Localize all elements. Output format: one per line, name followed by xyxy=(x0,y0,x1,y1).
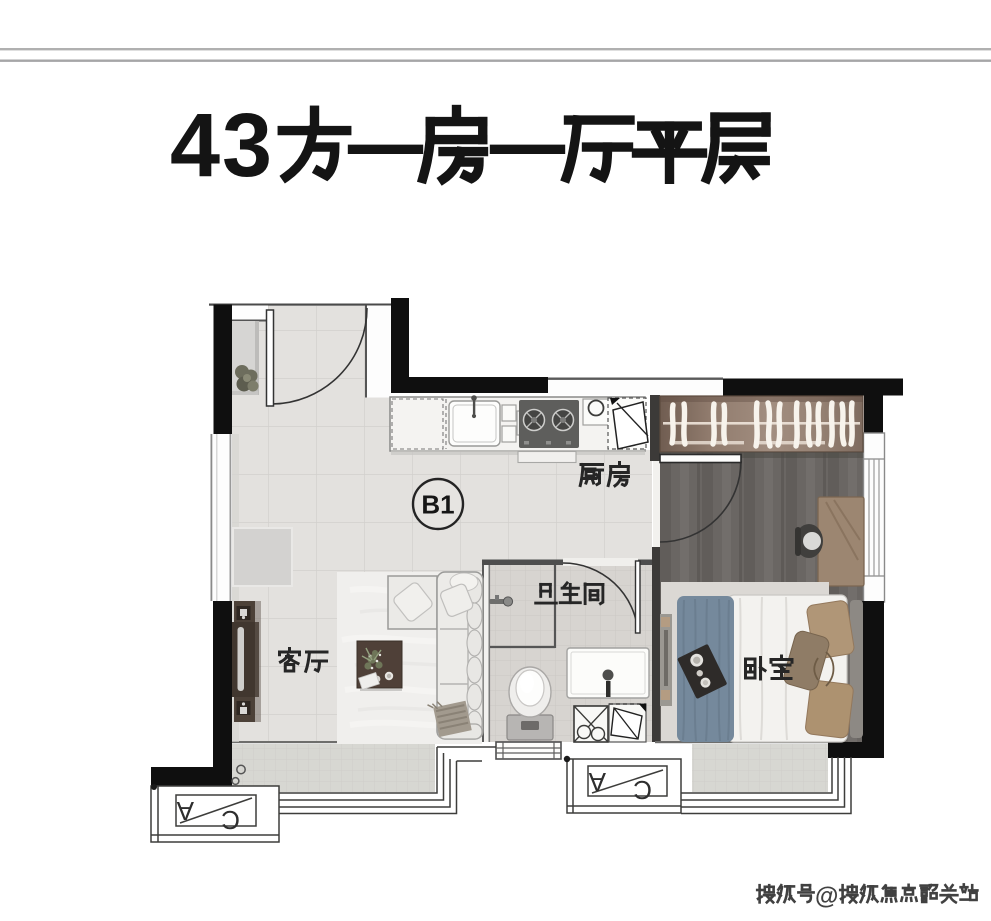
svg-text:A: A xyxy=(176,796,194,826)
svg-text:@: @ xyxy=(815,883,838,910)
svg-text:B1: B1 xyxy=(421,490,454,520)
svg-text:C: C xyxy=(221,805,240,835)
svg-text:43: 43 xyxy=(170,96,274,196)
svg-text:A: A xyxy=(588,767,606,797)
svg-text:C: C xyxy=(633,775,652,805)
